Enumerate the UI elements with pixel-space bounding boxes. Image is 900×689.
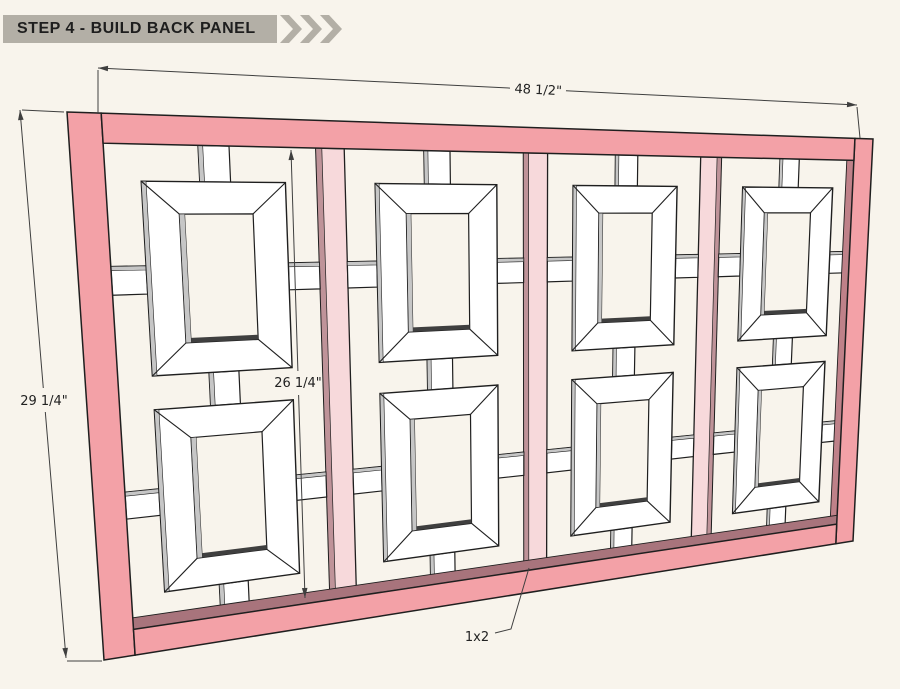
connector-side-face bbox=[615, 155, 619, 186]
lattice-frame-opening bbox=[755, 387, 803, 488]
lattice-frame-opening bbox=[191, 432, 267, 559]
step-title: STEP 4 - BUILD BACK PANEL bbox=[17, 20, 256, 38]
step-banner-bar: STEP 4 - BUILD BACK PANEL bbox=[3, 15, 277, 43]
lattice-frame-opening bbox=[406, 214, 469, 333]
connector-top-face bbox=[111, 266, 147, 271]
connector-side-face bbox=[427, 359, 431, 390]
connector-side-face bbox=[773, 339, 777, 366]
opening-side-face bbox=[596, 404, 601, 508]
lattice-frame-side-face bbox=[572, 185, 576, 350]
connector-top-face bbox=[547, 257, 572, 261]
lattice-frame-opening bbox=[761, 213, 811, 315]
dimension-height-label: 29 1/4" bbox=[20, 394, 68, 409]
lattice-frame-side-face bbox=[571, 379, 575, 536]
lattice-frame-opening bbox=[410, 414, 471, 530]
lattice-frame-opening bbox=[179, 214, 258, 343]
connector-top-face bbox=[676, 255, 699, 259]
connector-top-face bbox=[719, 254, 741, 258]
connector-top-face bbox=[347, 261, 377, 265]
step-banner: STEP 4 - BUILD BACK PANEL bbox=[3, 15, 342, 43]
divider-side-face bbox=[523, 153, 528, 571]
back-panel-diagram: 48 1/2"29 1/4"26 1/4"1x2 bbox=[0, 0, 900, 689]
lattice-frame-opening bbox=[596, 400, 649, 508]
chevrons-icon bbox=[280, 15, 342, 43]
board-size-label: 1x2 bbox=[465, 630, 489, 645]
connector-top-face bbox=[288, 262, 319, 267]
chevron-icon bbox=[280, 15, 302, 43]
lattice-frame-opening bbox=[598, 213, 652, 323]
connector-side-face bbox=[424, 151, 429, 185]
connector-side-face bbox=[613, 348, 617, 377]
dimension-opening-height-label: 26 1/4" bbox=[274, 376, 322, 391]
connector-top-face bbox=[497, 258, 523, 262]
dimension-width-label: 48 1/2" bbox=[514, 82, 562, 99]
chevron-icon bbox=[320, 15, 342, 43]
chevron-icon bbox=[300, 15, 322, 43]
